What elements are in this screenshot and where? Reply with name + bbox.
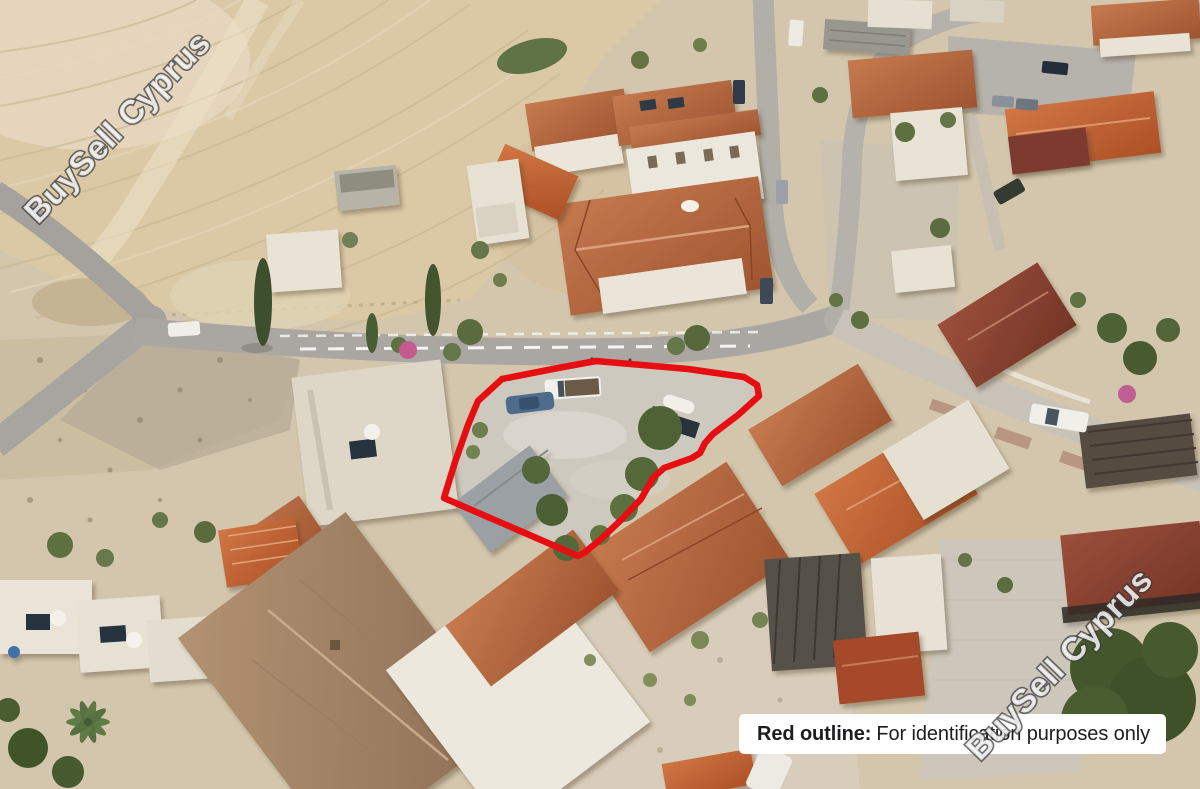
listing-photo-frame: Red outline: For identification purposes…: [0, 0, 1200, 789]
aerial-photo: [0, 0, 1200, 789]
disclaimer-bold-label: Red outline:: [757, 723, 871, 746]
disclaimer-badge: Red outline: For identification purposes…: [739, 714, 1166, 754]
disclaimer-text: For identification purposes only: [876, 723, 1150, 746]
